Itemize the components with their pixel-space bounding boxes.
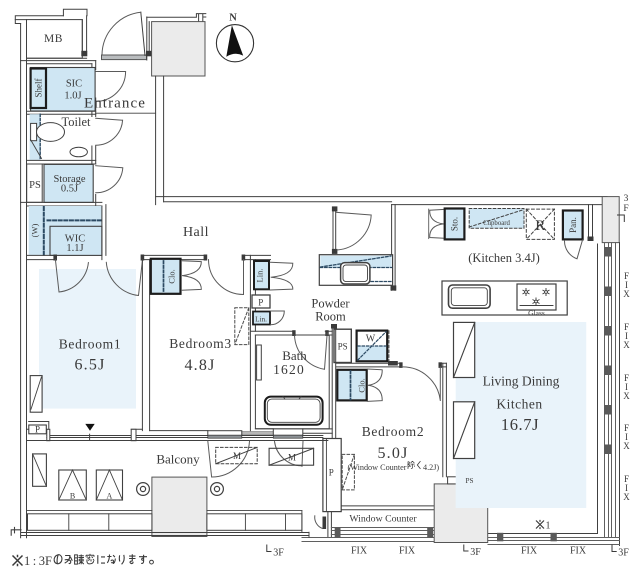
svg-text:X: X — [623, 441, 630, 451]
svg-text:M: M — [288, 453, 296, 463]
svg-text:1.1J: 1.1J — [66, 243, 83, 254]
svg-text:SIC: SIC — [66, 79, 82, 90]
svg-text:Glass: Glass — [528, 309, 545, 318]
svg-text:Bedroom2: Bedroom2 — [362, 424, 425, 439]
svg-text:F: F — [623, 204, 628, 214]
svg-text:X: X — [623, 492, 630, 502]
svg-text:Bedroom3: Bedroom3 — [169, 336, 232, 351]
svg-text:P: P — [35, 424, 40, 434]
svg-text:(Kitchen 3.4J): (Kitchen 3.4J) — [468, 251, 540, 265]
svg-text:Cupboard: Cupboard — [483, 220, 510, 227]
svg-text:4.8J: 4.8J — [184, 357, 215, 374]
svg-text:X: X — [623, 391, 630, 401]
svg-text:FIX: FIX — [521, 546, 538, 557]
svg-text:N: N — [229, 13, 237, 24]
svg-text:FIX: FIX — [399, 546, 416, 557]
svg-text:Pan.: Pan. — [568, 217, 578, 233]
svg-text:B: B — [70, 492, 75, 501]
svg-text:Hall: Hall — [183, 225, 209, 240]
svg-text:0.5J: 0.5J — [61, 184, 78, 195]
svg-text:3F: 3F — [470, 547, 481, 558]
svg-text:Living Dining: Living Dining — [483, 374, 560, 389]
svg-text:P: P — [258, 297, 263, 307]
svg-text:A: A — [107, 492, 113, 501]
svg-text:PS: PS — [29, 180, 41, 191]
svg-text:4.2J): 4.2J) — [423, 463, 439, 472]
svg-text:Lin.: Lin. — [255, 269, 265, 283]
svg-text:Clo.: Clo. — [167, 269, 177, 283]
svg-text:X: X — [623, 289, 630, 299]
svg-text:Bedroom1: Bedroom1 — [59, 337, 122, 352]
svg-text:FIX: FIX — [570, 546, 587, 557]
svg-text:Window Counter: Window Counter — [349, 514, 417, 525]
svg-text:3F: 3F — [273, 548, 284, 559]
svg-text:M: M — [233, 451, 241, 461]
svg-text:FIX: FIX — [351, 546, 368, 557]
svg-text:MB: MB — [44, 33, 63, 45]
svg-text:Balcony: Balcony — [156, 452, 200, 467]
svg-text:6.5J: 6.5J — [74, 357, 105, 374]
svg-text:1 : 3F: 1 : 3F — [24, 554, 52, 568]
svg-text:5.0J: 5.0J — [377, 445, 408, 462]
svg-text:Powder: Powder — [311, 297, 350, 311]
svg-text:Toilet: Toilet — [62, 115, 92, 129]
svg-text:(W): (W) — [30, 223, 40, 237]
svg-text:R: R — [535, 218, 545, 234]
svg-text:3: 3 — [624, 194, 629, 204]
svg-text:Entrance: Entrance — [84, 96, 146, 112]
svg-text:3F: 3F — [618, 548, 629, 559]
svg-text:W: W — [366, 334, 376, 345]
svg-text:Kitchen: Kitchen — [496, 397, 542, 412]
svg-text:Room: Room — [315, 310, 346, 324]
svg-text:PS: PS — [338, 342, 348, 352]
svg-text:X: X — [623, 340, 630, 350]
svg-text:1.0J: 1.0J — [64, 91, 81, 102]
svg-text:PS: PS — [466, 477, 474, 485]
svg-text:P: P — [329, 468, 334, 478]
svg-text:Sto.: Sto. — [450, 217, 460, 231]
svg-text:Clo.: Clo. — [357, 378, 367, 392]
svg-text:1620: 1620 — [273, 362, 305, 377]
svg-text:Bath: Bath — [282, 348, 307, 363]
svg-text:Lin.: Lin. — [255, 316, 267, 324]
svg-text:(Window Counter: (Window Counter — [347, 463, 406, 472]
svg-text:1: 1 — [546, 521, 551, 532]
svg-text:Shelf: Shelf — [33, 78, 43, 97]
svg-text:16.7J: 16.7J — [501, 415, 539, 434]
